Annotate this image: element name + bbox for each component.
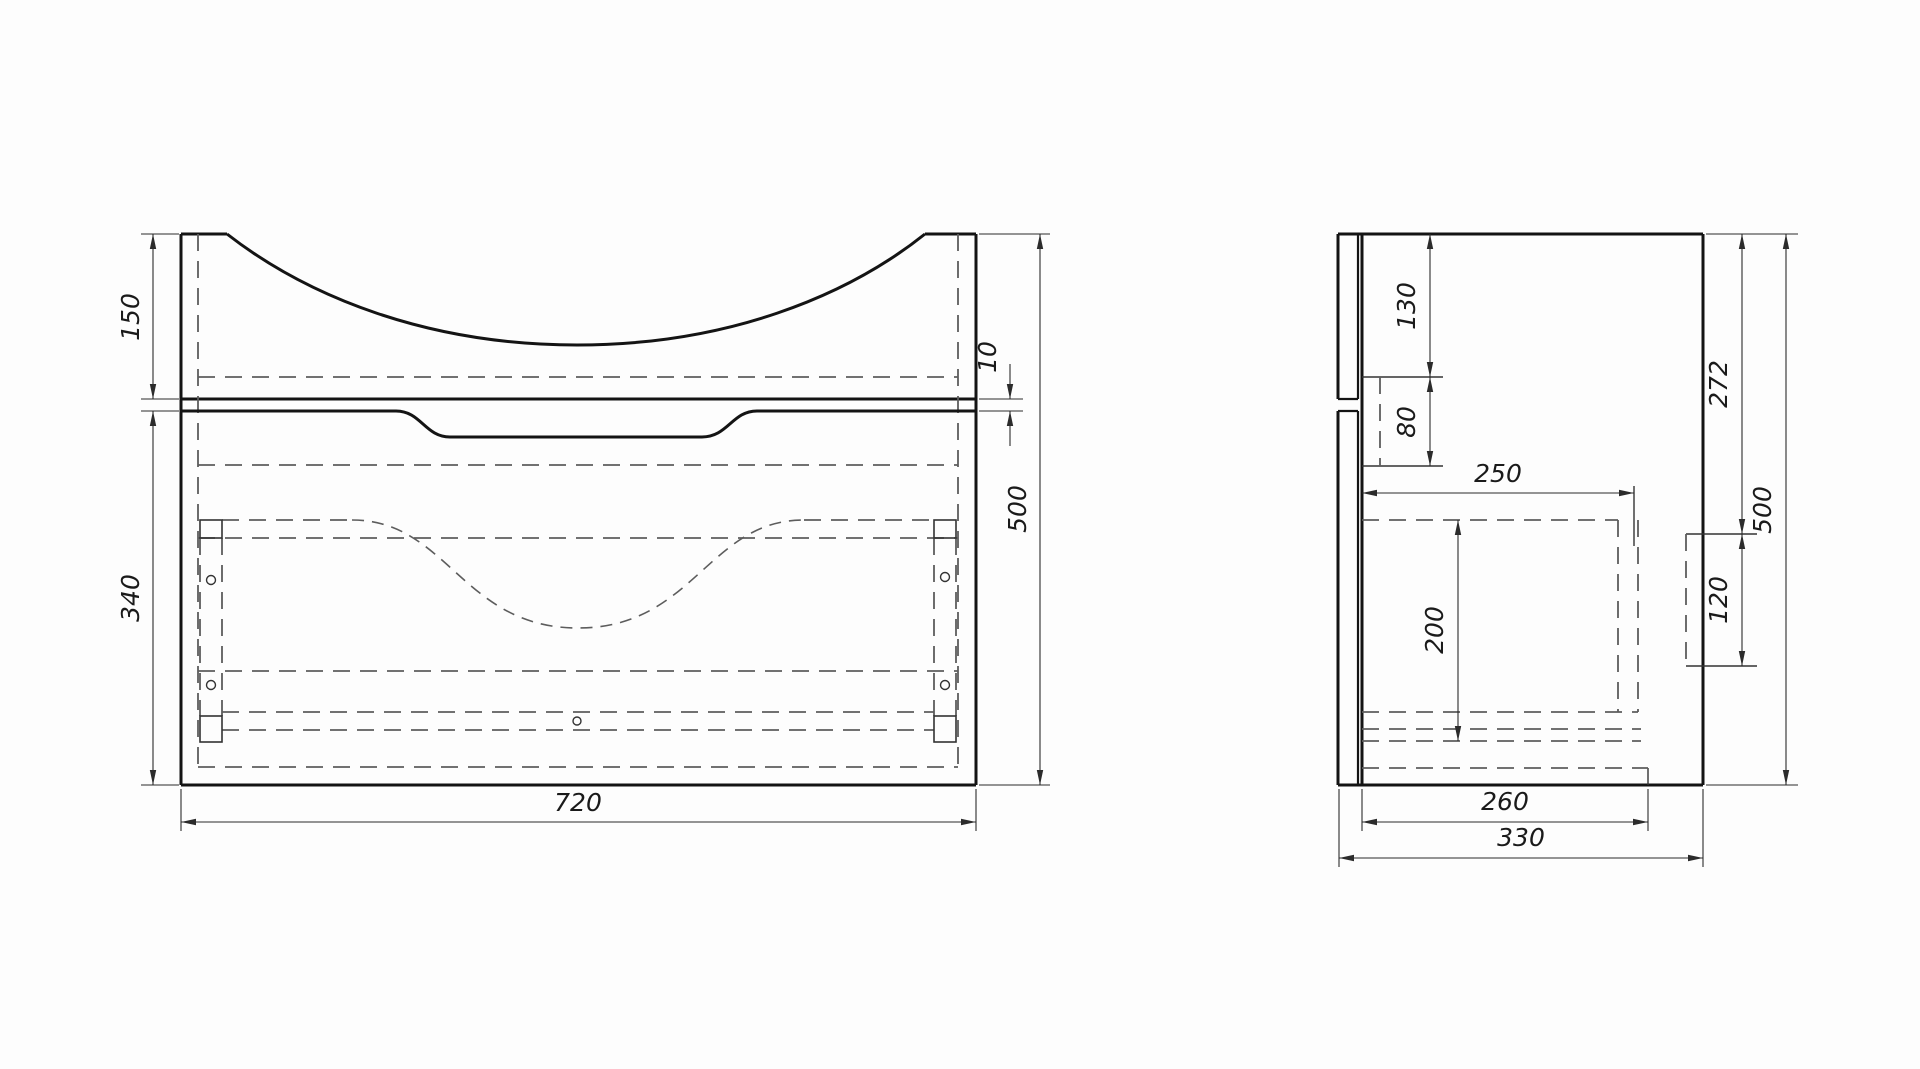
- dim-arrow: [961, 819, 976, 825]
- dim-arrow: [150, 384, 156, 399]
- dim-label-500-front: 500: [1003, 485, 1032, 533]
- dim-arrow: [1427, 377, 1433, 392]
- dim-arrow: [1455, 726, 1461, 741]
- bracket-block: [200, 716, 222, 742]
- dim-arrow: [150, 770, 156, 785]
- dim-arrow: [1427, 234, 1433, 249]
- dim-label-340: 340: [116, 574, 145, 622]
- front-view: 15034072010500: [116, 234, 1050, 831]
- dim-arrow: [1633, 819, 1648, 825]
- dim-label-10: 10: [973, 341, 1002, 373]
- dim-arrow: [1427, 451, 1433, 466]
- technical-drawing: 1503407201050013080250200272120500260330: [0, 0, 1920, 1069]
- dim-arrow: [1037, 770, 1043, 785]
- dim-label-272: 272: [1704, 360, 1733, 408]
- dim-label-130: 130: [1392, 282, 1421, 330]
- dim-arrow: [1783, 234, 1789, 249]
- bracket-block: [934, 520, 956, 538]
- dim-arrow: [181, 819, 196, 825]
- basin-top-curve: [227, 234, 925, 345]
- dim-arrow: [1362, 490, 1377, 496]
- dim-arrow: [1739, 534, 1745, 549]
- side-view: 13080250200272120500260330: [1338, 234, 1798, 867]
- fastener-hole: [207, 681, 216, 690]
- dim-arrow: [1739, 519, 1745, 534]
- dim-label-120: 120: [1704, 576, 1733, 624]
- dim-arrow: [1362, 819, 1377, 825]
- dim-arrow: [1037, 234, 1043, 249]
- fastener-hole: [941, 573, 950, 582]
- drawing-canvas: 1503407201050013080250200272120500260330: [0, 0, 1920, 1069]
- dim-arrow: [1455, 520, 1461, 535]
- dim-label-250: 250: [1474, 459, 1522, 488]
- dim-label-500-side: 500: [1748, 486, 1777, 534]
- dim-arrow: [1783, 770, 1789, 785]
- dim-label-720: 720: [554, 788, 602, 817]
- dim-arrow: [1739, 651, 1745, 666]
- dim-label-330: 330: [1497, 823, 1545, 852]
- fastener-hole: [207, 576, 216, 585]
- dim-label-200: 200: [1420, 606, 1449, 654]
- dim-label-150: 150: [116, 293, 145, 341]
- basin-bowl-hidden-curve: [352, 520, 804, 628]
- fastener-hole: [941, 681, 950, 690]
- bracket-block: [200, 520, 222, 538]
- dim-arrow: [1688, 855, 1703, 861]
- drawer-top-with-handle-recess: [181, 411, 976, 437]
- dim-label-80: 80: [1392, 406, 1421, 438]
- dim-arrow: [1739, 234, 1745, 249]
- dim-label-260: 260: [1481, 787, 1529, 816]
- dim-arrow: [1427, 362, 1433, 377]
- dim-arrow: [1007, 411, 1013, 426]
- center-hole: [573, 717, 581, 725]
- dim-arrow: [150, 234, 156, 249]
- dim-arrow: [1339, 855, 1354, 861]
- dim-arrow: [150, 411, 156, 426]
- bracket-block: [934, 716, 956, 742]
- dim-arrow: [1619, 490, 1634, 496]
- dim-arrow: [1007, 384, 1013, 399]
